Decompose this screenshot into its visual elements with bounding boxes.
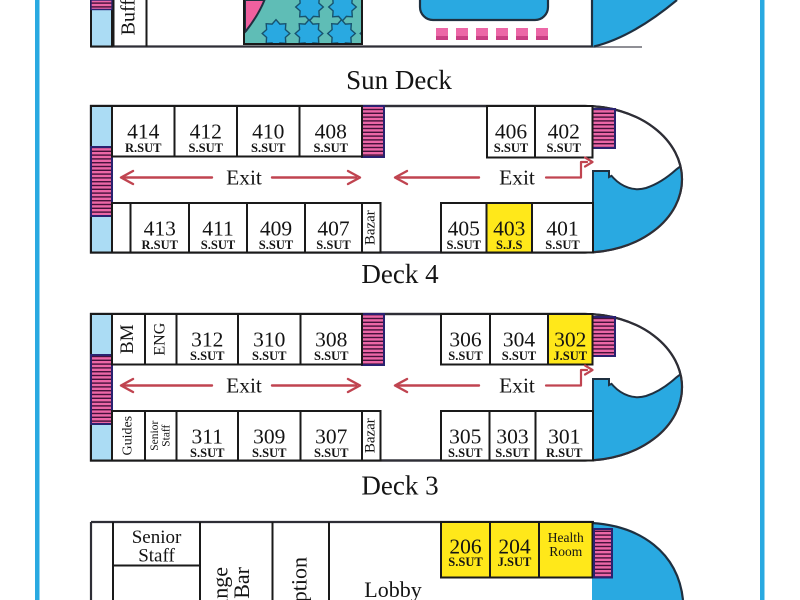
- svg-text:413: 413: [144, 217, 176, 241]
- svg-text:Exit: Exit: [226, 374, 262, 398]
- svg-text:312: 312: [191, 328, 223, 352]
- svg-text:S.SUT: S.SUT: [316, 238, 351, 252]
- svg-text:S.SUT: S.SUT: [201, 238, 236, 252]
- svg-text:310: 310: [253, 328, 285, 352]
- svg-text:J.SUT: J.SUT: [498, 555, 532, 569]
- svg-text:411: 411: [202, 217, 233, 241]
- svg-text:S.SUT: S.SUT: [448, 555, 483, 569]
- svg-text:Deck 4: Deck 4: [361, 259, 439, 289]
- svg-text:Exit: Exit: [499, 166, 535, 190]
- svg-text:Reception: Reception: [287, 557, 312, 600]
- svg-text:Deck 3: Deck 3: [361, 471, 438, 501]
- svg-text:S.SUT: S.SUT: [259, 238, 294, 252]
- svg-text:S.J.S: S.J.S: [496, 238, 522, 252]
- svg-text:S.SUT: S.SUT: [314, 446, 349, 460]
- svg-text:ENG: ENG: [151, 322, 168, 355]
- svg-text:409: 409: [260, 217, 292, 241]
- svg-text:S.SUT: S.SUT: [252, 446, 287, 460]
- svg-text:Room: Room: [549, 544, 583, 559]
- svg-text:R.SUT: R.SUT: [142, 238, 179, 252]
- svg-text:Staff: Staff: [161, 424, 173, 446]
- svg-text:S.SUT: S.SUT: [314, 349, 349, 363]
- svg-text:305: 305: [449, 425, 481, 449]
- svg-text:Health: Health: [548, 530, 584, 545]
- svg-text:Sun Deck: Sun Deck: [346, 65, 452, 95]
- svg-text:307: 307: [315, 425, 348, 449]
- svg-text:Bazar: Bazar: [363, 210, 379, 245]
- svg-text:Staff: Staff: [138, 546, 175, 567]
- svg-text:301: 301: [548, 425, 580, 449]
- svg-text:R.SUT: R.SUT: [125, 141, 162, 155]
- svg-text:Senior: Senior: [149, 421, 161, 451]
- svg-text:S.SUT: S.SUT: [190, 349, 225, 363]
- svg-text:410: 410: [252, 120, 284, 144]
- svg-text:J.SUT: J.SUT: [553, 349, 587, 363]
- svg-text:S.SUT: S.SUT: [447, 238, 482, 252]
- svg-text:414: 414: [127, 120, 160, 144]
- svg-text:Buffet: Buffet: [118, 0, 140, 35]
- svg-text:304: 304: [503, 328, 536, 352]
- svg-text:S.SUT: S.SUT: [495, 446, 530, 460]
- svg-text:311: 311: [192, 425, 223, 449]
- svg-text:BM: BM: [117, 324, 138, 354]
- svg-text:303: 303: [496, 425, 528, 449]
- svg-text:S.SUT: S.SUT: [252, 349, 287, 363]
- svg-text:S.SUT: S.SUT: [251, 141, 286, 155]
- svg-text:S.SUT: S.SUT: [314, 141, 349, 155]
- svg-text:302: 302: [554, 328, 586, 352]
- svg-text:309: 309: [253, 425, 285, 449]
- svg-text:406: 406: [495, 120, 528, 144]
- svg-text:Lobby: Lobby: [364, 577, 421, 600]
- svg-text:405: 405: [448, 217, 480, 241]
- svg-text:Exit: Exit: [226, 166, 262, 190]
- svg-text:S.SUT: S.SUT: [448, 446, 483, 460]
- svg-text:S.SUT: S.SUT: [190, 446, 225, 460]
- svg-text:S.SUT: S.SUT: [545, 238, 580, 252]
- svg-text:407: 407: [317, 217, 350, 241]
- svg-text:402: 402: [548, 120, 580, 144]
- svg-text:306: 306: [449, 328, 482, 352]
- svg-text:Guides: Guides: [121, 416, 136, 456]
- svg-text:S.SUT: S.SUT: [189, 141, 224, 155]
- svg-text:Bazar: Bazar: [363, 418, 379, 453]
- svg-text:408: 408: [315, 120, 347, 144]
- svg-text:308: 308: [315, 328, 347, 352]
- svg-text:S.SUT: S.SUT: [547, 141, 582, 155]
- svg-text:R.SUT: R.SUT: [546, 446, 583, 460]
- svg-text:412: 412: [190, 120, 222, 144]
- svg-text:Bar: Bar: [229, 566, 254, 598]
- svg-text:S.SUT: S.SUT: [502, 349, 537, 363]
- svg-text:Exit: Exit: [499, 374, 535, 398]
- svg-text:S.SUT: S.SUT: [494, 141, 529, 155]
- svg-text:403: 403: [493, 217, 525, 241]
- svg-text:401: 401: [546, 217, 578, 241]
- svg-text:S.SUT: S.SUT: [448, 349, 483, 363]
